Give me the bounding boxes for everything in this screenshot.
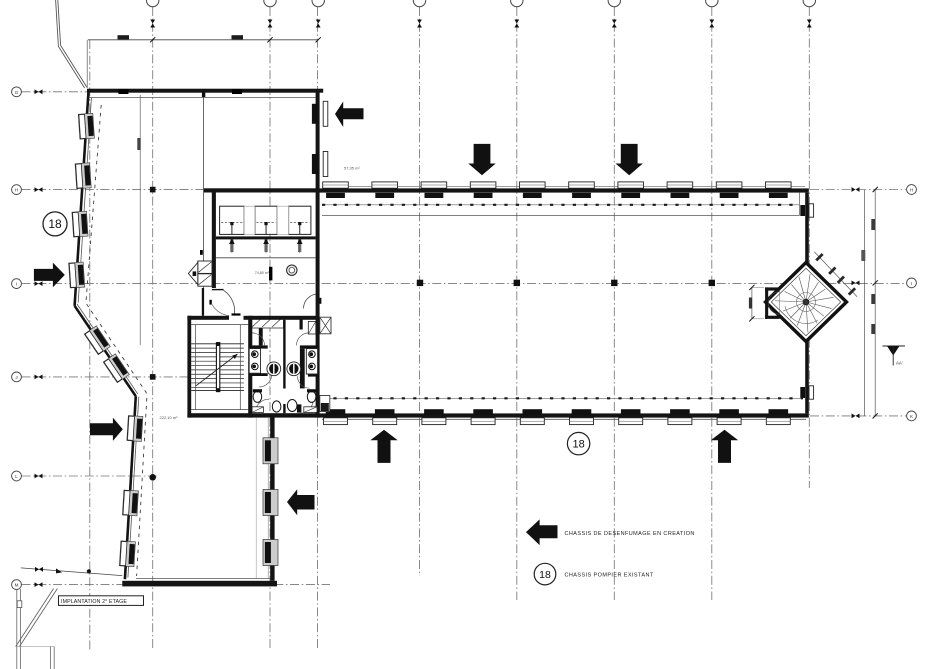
svg-text:CHASSIS DE DESENFUMAGE EN CREA: CHASSIS DE DESENFUMAGE EN CREATION [565, 531, 695, 537]
svg-text:CHASSIS POMPIER EXISTANT: CHASSIS POMPIER EXISTANT [565, 573, 654, 579]
svg-text:57,35 m²: 57,35 m² [344, 166, 360, 171]
svg-text:74,80 m²: 74,80 m² [255, 271, 270, 275]
svg-text:H: H [15, 188, 18, 193]
svg-text:J: J [15, 375, 17, 380]
svg-text:G: G [15, 90, 19, 95]
svg-text:I: I [16, 282, 17, 287]
svg-text:222,10 m²: 222,10 m² [160, 415, 179, 420]
svg-text:18: 18 [572, 439, 584, 451]
svg-text:18: 18 [48, 217, 62, 231]
svg-text:M: M [15, 583, 19, 588]
svg-text:L: L [15, 474, 18, 479]
svg-text:H: H [910, 188, 913, 193]
svg-text:I: I [911, 281, 912, 286]
svg-text:AA': AA' [896, 361, 903, 366]
svg-text:IMPLANTATION 2° ETAGE: IMPLANTATION 2° ETAGE [61, 599, 127, 605]
svg-text:18: 18 [539, 569, 551, 581]
